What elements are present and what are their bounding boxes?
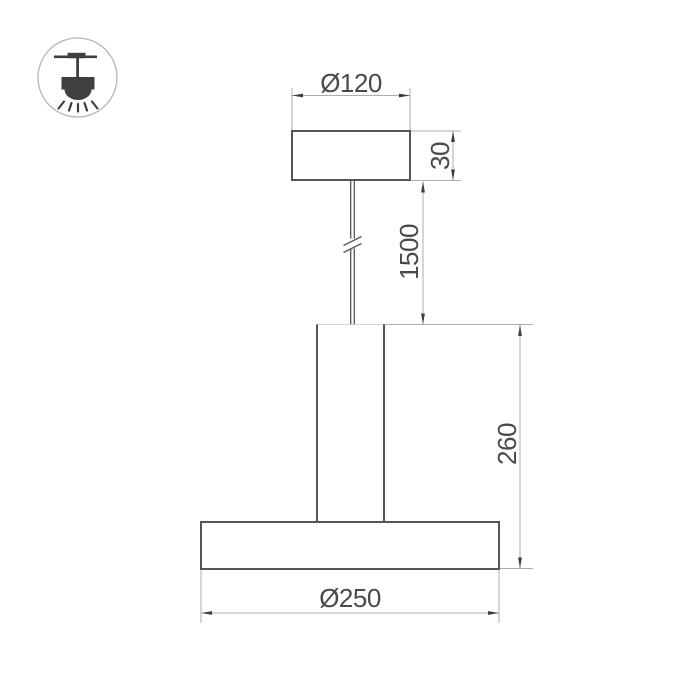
canopy-rect <box>292 131 410 180</box>
suspension-wire <box>344 181 362 325</box>
arrowhead-left-icon <box>201 611 212 615</box>
arrowhead-left-icon <box>292 94 303 98</box>
arrowhead-up-icon <box>518 325 522 336</box>
dimension-canopy-height: 30 <box>410 131 461 181</box>
icon-stem <box>76 58 79 78</box>
drawing-svg: Ø120 30 1500 260 <box>0 0 700 700</box>
arrowhead-right-icon <box>399 94 410 98</box>
dimension-canopy-diameter: Ø120 <box>292 68 410 130</box>
body-height-label: 260 <box>492 423 522 465</box>
arrowhead-down-icon <box>421 314 425 325</box>
arrowhead-up-icon <box>451 131 455 142</box>
arrowhead-up-icon <box>421 182 425 193</box>
product-dimension-drawing: Ø120 30 1500 260 <box>0 0 700 700</box>
suspension-length-label: 1500 <box>394 224 424 280</box>
arrowhead-down-icon <box>451 170 455 181</box>
icon-mount <box>68 53 86 58</box>
dimension-suspension-length: 1500 <box>317 182 533 325</box>
arrowhead-right-icon <box>488 611 499 615</box>
shade-disc <box>201 522 499 569</box>
icon-shade <box>62 77 95 90</box>
dimension-shade-diameter: Ø250 <box>201 569 499 623</box>
body-cylinder <box>317 325 384 523</box>
canopy-height-label: 30 <box>425 142 455 170</box>
arrowhead-down-icon <box>518 558 522 569</box>
lamp-outline <box>201 131 499 569</box>
canopy-diameter-label: Ø120 <box>320 68 382 98</box>
pendant-lamp-icon <box>38 38 117 117</box>
shade-diameter-label: Ø250 <box>319 583 381 613</box>
